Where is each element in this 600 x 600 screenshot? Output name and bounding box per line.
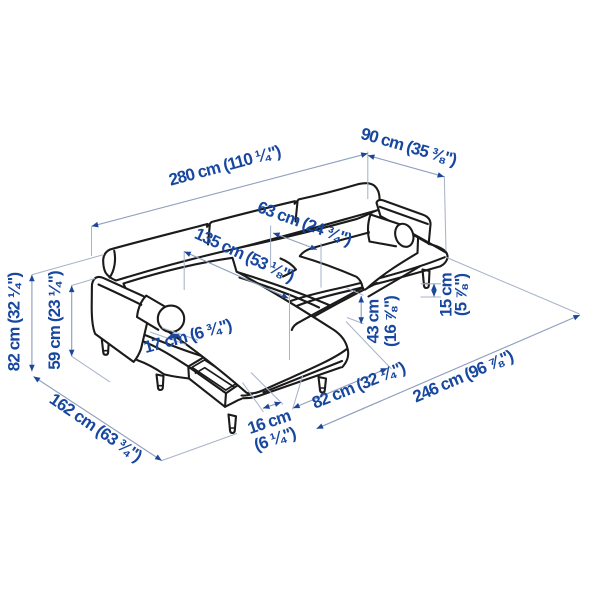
svg-text:82 cm (32 ¼"): 82 cm (32 ¼") (5, 273, 24, 372)
svg-text:(16 ⅞"): (16 ⅞") (381, 296, 400, 347)
svg-text:43 cm: 43 cm (364, 299, 383, 343)
svg-text:(5 ⅞"): (5 ⅞") (452, 274, 471, 317)
svg-text:59 cm (23 ¼"): 59 cm (23 ¼") (45, 271, 64, 370)
